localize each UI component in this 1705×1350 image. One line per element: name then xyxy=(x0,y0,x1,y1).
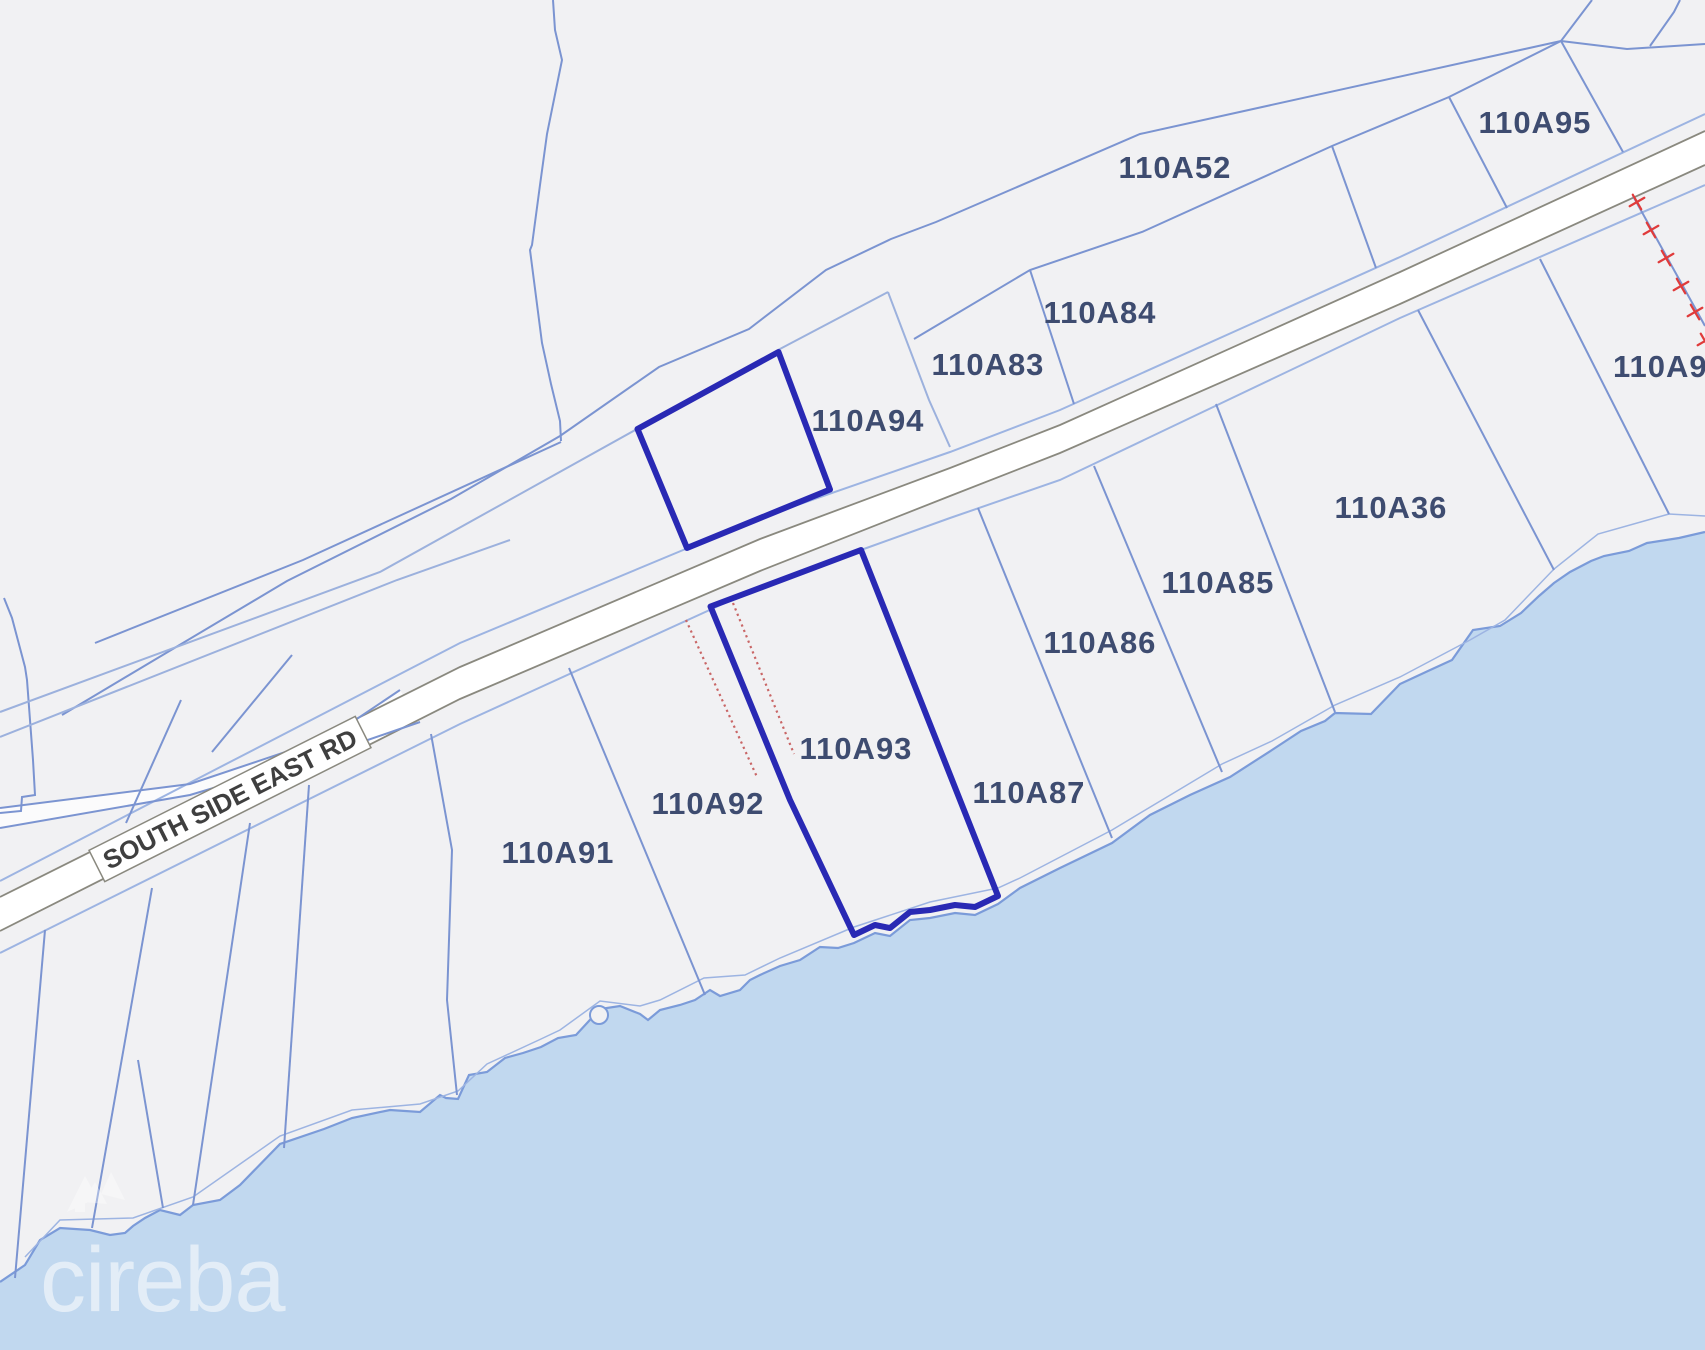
svg-text:110A87: 110A87 xyxy=(973,775,1086,810)
svg-text:110A83: 110A83 xyxy=(932,347,1045,382)
svg-text:110A84: 110A84 xyxy=(1044,295,1157,330)
svg-text:110A94: 110A94 xyxy=(812,403,925,438)
svg-text:110A91: 110A91 xyxy=(502,835,615,870)
svg-text:110A52: 110A52 xyxy=(1119,150,1232,185)
svg-text:110A85: 110A85 xyxy=(1162,565,1275,600)
svg-text:110A36: 110A36 xyxy=(1335,490,1448,525)
svg-text:110A97: 110A97 xyxy=(1613,349,1705,384)
svg-text:110A86: 110A86 xyxy=(1044,625,1157,660)
svg-text:110A95: 110A95 xyxy=(1479,105,1592,140)
svg-text:110A92: 110A92 xyxy=(652,786,765,821)
svg-text:110A93: 110A93 xyxy=(800,731,913,766)
svg-text:cireba: cireba xyxy=(40,1229,286,1331)
